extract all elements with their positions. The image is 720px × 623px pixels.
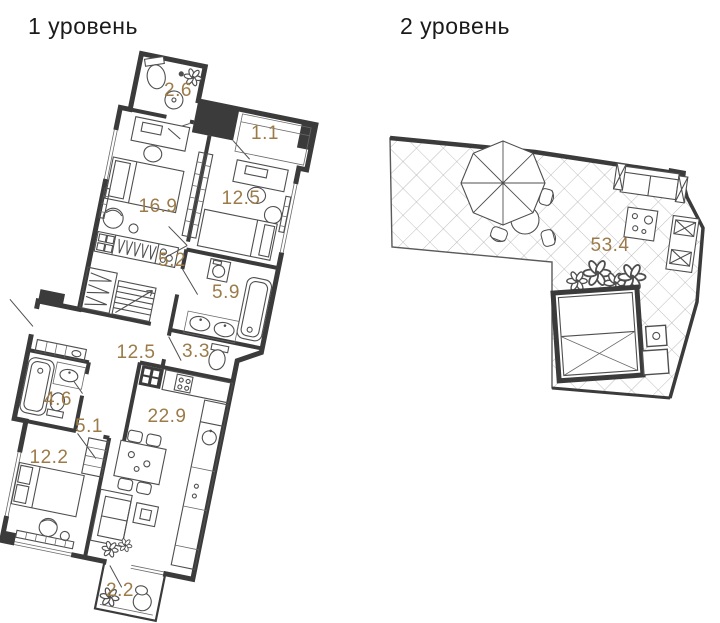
- room-area-label: 12.2: [30, 447, 69, 468]
- room-area-label: 3.3: [182, 341, 210, 362]
- room-area-label: 5.2: [158, 250, 186, 271]
- level2-title: 2 уровень: [400, 13, 510, 39]
- stairs: [112, 281, 156, 322]
- level1-title: 1 уровень: [28, 13, 138, 39]
- room-area-label: 16.9: [139, 196, 178, 217]
- kitchen-living-22-9-furniture: [88, 362, 233, 575]
- room-area-label: 2.2: [106, 580, 134, 601]
- room-area-label: 5.9: [212, 282, 240, 303]
- wc-3-3-fixtures: [207, 343, 229, 371]
- room-area-label: 2.6: [164, 80, 192, 101]
- room-area-label: 1.1: [251, 123, 279, 144]
- room-area-label: 22.9: [148, 406, 187, 427]
- parasol-icon: [461, 141, 545, 225]
- room-area-label: 4.6: [44, 389, 72, 410]
- room-area-label: 12.5: [117, 342, 156, 363]
- room-area-label: 5.1: [75, 416, 103, 437]
- room-area-label: 12.5: [222, 188, 261, 209]
- level-2-plan: 53.4: [390, 138, 705, 398]
- floorplan-canvas: 1 уровень 2 уровень: [0, 0, 720, 623]
- room-area-label: 53.4: [591, 235, 630, 256]
